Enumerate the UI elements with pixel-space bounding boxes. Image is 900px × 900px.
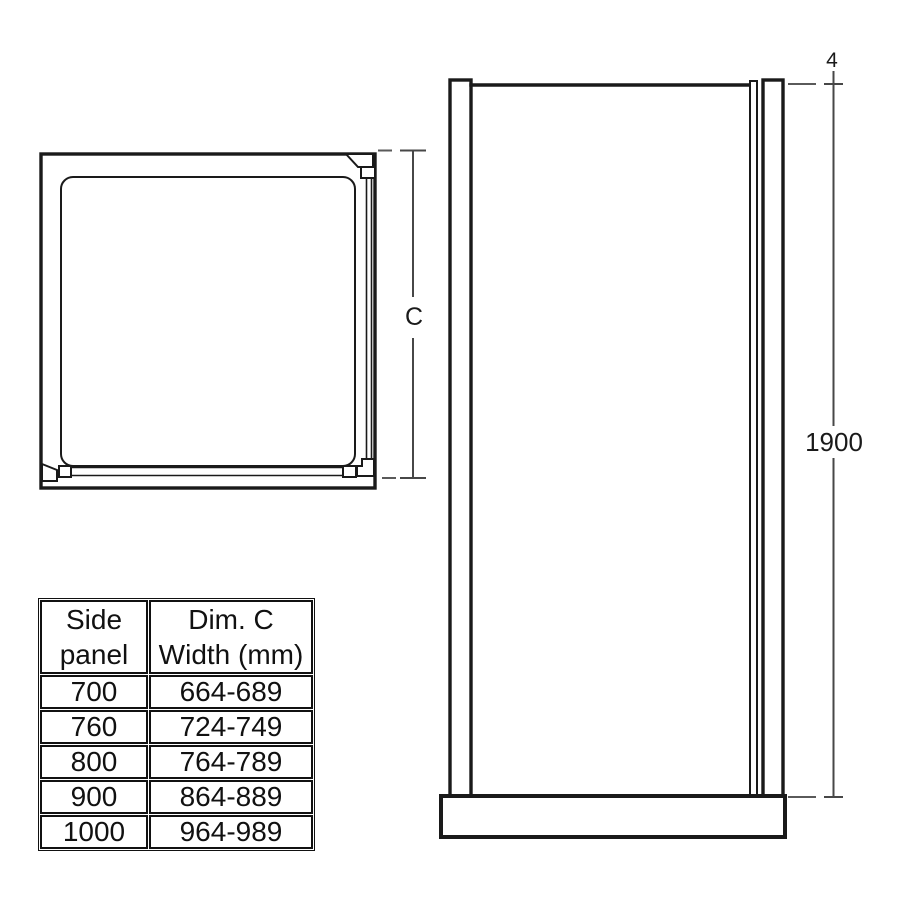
plan-profile-connector-top <box>361 167 375 178</box>
column-header-dim-c-width: Dim. C Width (mm) <box>149 600 313 674</box>
elevation-adjustment-profile-right <box>763 80 783 796</box>
dim-top-offset-label: 4 <box>826 49 838 72</box>
table-row: 900 864-889 <box>40 780 313 814</box>
elevation-glass-edge-strip <box>750 81 757 796</box>
header-text: Width (mm) <box>151 637 311 672</box>
elevation-wall-profile-left <box>450 80 471 796</box>
table-row: 800 764-789 <box>40 745 313 779</box>
dim-height-label: 1900 <box>805 427 863 457</box>
cell-side-panel: 760 <box>40 710 148 744</box>
plan-corner-joint-square <box>343 466 356 477</box>
cell-side-panel: 1000 <box>40 815 148 849</box>
size-table-header-row: Side panel Dim. C Width (mm) <box>40 600 313 674</box>
elevation-dimension-height: 4 1900 <box>788 49 863 797</box>
plan-tray-outer <box>41 154 375 488</box>
cell-dim-c: 764-789 <box>149 745 313 779</box>
header-text: Side <box>42 602 146 637</box>
cell-side-panel: 900 <box>40 780 148 814</box>
table-row: 700 664-689 <box>40 675 313 709</box>
technical-drawing-page: C 4 1900 <box>0 0 900 900</box>
plan-view: C <box>41 151 426 489</box>
cell-dim-c: 964-989 <box>149 815 313 849</box>
cell-dim-c: 664-689 <box>149 675 313 709</box>
plan-profile-connector-left <box>59 466 71 477</box>
cell-dim-c: 864-889 <box>149 780 313 814</box>
plan-dimension-c: C <box>378 151 426 479</box>
elevation-tray-base <box>441 796 785 837</box>
elevation-view: 4 1900 <box>441 49 863 837</box>
cell-dim-c: 724-749 <box>149 710 313 744</box>
table-row: 1000 964-989 <box>40 815 313 849</box>
column-header-side-panel: Side panel <box>40 600 148 674</box>
dim-c-label: C <box>405 303 423 331</box>
header-text: panel <box>42 637 146 672</box>
size-table: Side panel Dim. C Width (mm) 700 664-689… <box>38 598 315 851</box>
cell-side-panel: 700 <box>40 675 148 709</box>
table-row: 760 724-749 <box>40 710 313 744</box>
cell-side-panel: 800 <box>40 745 148 779</box>
header-text: Dim. C <box>151 602 311 637</box>
